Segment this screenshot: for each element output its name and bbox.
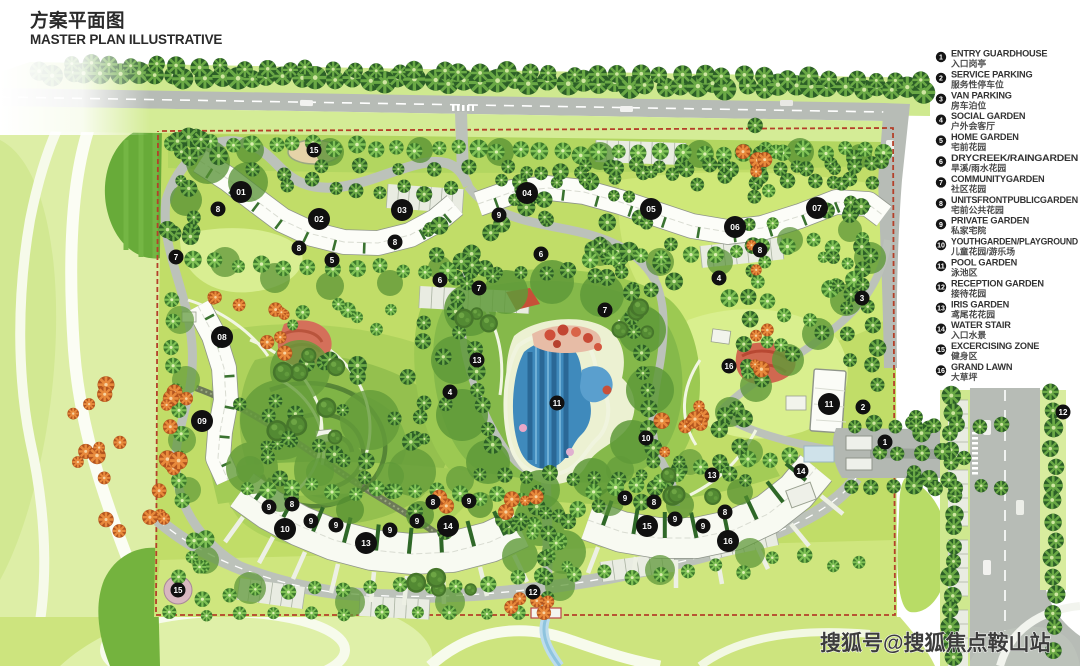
svg-text:户外会客厅: 户外会客厅 <box>951 120 995 131</box>
svg-text:13: 13 <box>473 356 482 365</box>
svg-text:2: 2 <box>861 403 866 412</box>
svg-text:8: 8 <box>652 498 657 507</box>
svg-text:8: 8 <box>723 508 728 517</box>
svg-text:DRYCREEK/RAINGARDEN: DRYCREEK/RAINGARDEN <box>951 153 1079 163</box>
svg-text:8: 8 <box>939 201 943 208</box>
svg-text:方案平面图: 方案平面图 <box>30 10 125 31</box>
svg-text:1: 1 <box>939 55 943 62</box>
svg-text:ENTRY GUARDHOUSE: ENTRY GUARDHOUSE <box>951 49 1047 59</box>
svg-text:健身区: 健身区 <box>951 350 978 361</box>
svg-text:搜狐号@搜狐焦点鞍山站: 搜狐号@搜狐焦点鞍山站 <box>820 631 1050 655</box>
svg-text:10: 10 <box>280 524 290 534</box>
svg-text:6: 6 <box>939 159 943 166</box>
svg-text:2: 2 <box>939 76 943 83</box>
svg-text:3: 3 <box>939 96 943 103</box>
svg-text:房车泊位: 房车泊位 <box>951 99 986 110</box>
svg-text:9: 9 <box>701 522 706 531</box>
svg-text:02: 02 <box>314 214 324 224</box>
svg-text:服务性停车位: 服务性停车位 <box>951 78 1004 89</box>
svg-text:13: 13 <box>708 471 717 480</box>
svg-text:泳池区: 泳池区 <box>951 267 978 278</box>
svg-text:9: 9 <box>388 526 393 535</box>
svg-text:10: 10 <box>642 434 651 443</box>
svg-text:8: 8 <box>431 498 436 507</box>
svg-text:私家宅院: 私家宅院 <box>950 225 986 236</box>
svg-text:15: 15 <box>642 521 652 531</box>
svg-text:9: 9 <box>267 503 272 512</box>
svg-text:09: 09 <box>197 416 207 426</box>
svg-text:8: 8 <box>297 244 302 253</box>
svg-text:SOCIAL GARDEN: SOCIAL GARDEN <box>951 111 1026 121</box>
svg-text:5: 5 <box>330 256 335 265</box>
svg-text:宅前公共花园: 宅前公共花园 <box>951 204 1004 215</box>
svg-text:GRAND LAWN: GRAND LAWN <box>951 362 1013 372</box>
svg-text:1: 1 <box>883 438 888 447</box>
svg-text:01: 01 <box>236 187 246 197</box>
svg-text:社区花园: 社区花园 <box>950 183 986 194</box>
svg-text:HOME GARDEN: HOME GARDEN <box>951 132 1019 142</box>
svg-text:WATER STAIR: WATER STAIR <box>951 320 1011 330</box>
svg-text:YOUTHGARDEN/PLAYGROUND: YOUTHGARDEN/PLAYGROUND <box>951 237 1079 247</box>
svg-text:07: 07 <box>812 203 822 213</box>
svg-text:接待花园: 接待花园 <box>951 287 986 298</box>
svg-text:9: 9 <box>467 497 472 506</box>
svg-text:大草坪: 大草坪 <box>951 371 978 382</box>
svg-text:8: 8 <box>216 205 221 214</box>
svg-text:SERVICE PARKING: SERVICE PARKING <box>951 69 1032 79</box>
svg-text:11: 11 <box>825 399 834 409</box>
svg-text:MASTER PLAN ILLUSTRATIVE: MASTER PLAN ILLUSTRATIVE <box>30 32 222 47</box>
svg-text:9: 9 <box>497 211 502 220</box>
svg-text:儿童花园/游乐场: 儿童花园/游乐场 <box>950 246 1015 257</box>
svg-text:16: 16 <box>725 362 734 371</box>
svg-text:PRIVATE GARDEN: PRIVATE GARDEN <box>951 216 1030 226</box>
svg-text:16: 16 <box>723 536 733 546</box>
svg-text:04: 04 <box>522 188 532 198</box>
svg-text:9: 9 <box>334 521 339 530</box>
svg-text:鸢尾花花园: 鸢尾花花园 <box>951 308 995 319</box>
svg-text:宅前花园: 宅前花园 <box>951 141 986 152</box>
svg-text:03: 03 <box>397 205 407 215</box>
svg-text:IRIS GARDEN: IRIS GARDEN <box>951 299 1010 309</box>
svg-text:14: 14 <box>797 467 806 476</box>
svg-text:入口水景: 入口水景 <box>951 329 986 340</box>
svg-text:4: 4 <box>448 388 453 397</box>
svg-text:8: 8 <box>393 238 398 247</box>
svg-text:06: 06 <box>730 222 740 232</box>
svg-text:9: 9 <box>939 222 943 229</box>
svg-text:7: 7 <box>477 284 482 293</box>
svg-text:8: 8 <box>290 500 295 509</box>
svg-text:4: 4 <box>717 274 722 283</box>
svg-text:RECEPTION GARDEN: RECEPTION GARDEN <box>951 278 1044 288</box>
svg-text:05: 05 <box>646 204 656 214</box>
svg-text:16: 16 <box>937 368 945 375</box>
svg-text:9: 9 <box>415 517 420 526</box>
svg-text:旱溪/雨水花园: 旱溪/雨水花园 <box>951 162 1006 173</box>
svg-text:13: 13 <box>937 305 945 312</box>
svg-text:入口岗亭: 入口岗亭 <box>951 58 986 69</box>
svg-text:14: 14 <box>937 326 945 333</box>
svg-text:08: 08 <box>217 332 227 342</box>
svg-text:COMMUNITYGARDEN: COMMUNITYGARDEN <box>951 174 1045 184</box>
svg-text:UNITSFRONTPUBLICGARDEN: UNITSFRONTPUBLICGARDEN <box>951 195 1079 205</box>
svg-text:7: 7 <box>174 253 179 262</box>
svg-text:14: 14 <box>443 521 453 531</box>
svg-text:15: 15 <box>937 347 945 354</box>
svg-text:9: 9 <box>309 517 314 526</box>
svg-text:6: 6 <box>539 250 544 259</box>
svg-text:13: 13 <box>361 538 371 548</box>
svg-text:9: 9 <box>623 494 628 503</box>
svg-text:12: 12 <box>937 285 945 292</box>
svg-text:5: 5 <box>939 138 943 145</box>
svg-text:VAN PARKING: VAN PARKING <box>951 90 1012 100</box>
svg-text:POOL GARDEN: POOL GARDEN <box>951 258 1018 268</box>
svg-text:12: 12 <box>1059 408 1068 417</box>
svg-text:9: 9 <box>673 515 678 524</box>
svg-text:10: 10 <box>937 243 945 250</box>
svg-text:11: 11 <box>553 399 562 408</box>
svg-text:7: 7 <box>603 306 608 315</box>
svg-text:11: 11 <box>937 264 945 271</box>
svg-text:8: 8 <box>758 246 763 255</box>
svg-text:15: 15 <box>310 146 319 155</box>
svg-text:EXCERCISING ZONE: EXCERCISING ZONE <box>951 341 1039 351</box>
svg-text:12: 12 <box>529 588 538 597</box>
svg-text:6: 6 <box>438 276 443 285</box>
svg-text:7: 7 <box>939 180 943 187</box>
svg-text:15: 15 <box>174 586 183 595</box>
svg-text:4: 4 <box>939 117 943 124</box>
svg-text:3: 3 <box>860 294 865 303</box>
